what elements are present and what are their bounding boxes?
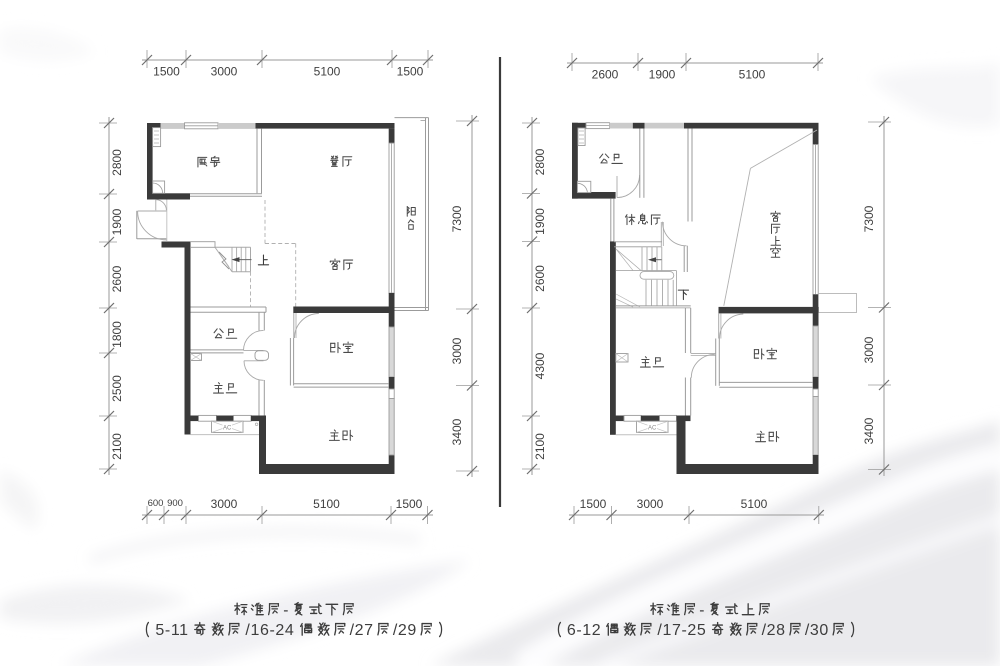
- svg-text:5100: 5100: [739, 68, 766, 82]
- svg-text:/28: /28: [762, 622, 786, 639]
- svg-text:3000: 3000: [211, 497, 238, 511]
- svg-text:3000: 3000: [211, 65, 238, 79]
- svg-text:3400: 3400: [862, 417, 876, 444]
- svg-text:1900: 1900: [649, 68, 676, 82]
- svg-text:/17-25: /17-25: [657, 622, 706, 639]
- svg-text:3000: 3000: [450, 337, 464, 364]
- svg-text:6-12: 6-12: [567, 622, 601, 639]
- svg-text:2500: 2500: [110, 375, 124, 402]
- svg-text:5100: 5100: [313, 497, 340, 511]
- svg-text:1500: 1500: [153, 65, 180, 79]
- svg-text:2800: 2800: [110, 149, 124, 176]
- svg-text:1900: 1900: [533, 208, 547, 235]
- svg-text:4300: 4300: [533, 352, 547, 379]
- svg-text:3000: 3000: [637, 497, 664, 511]
- svg-text:900: 900: [167, 498, 183, 509]
- svg-text:600: 600: [148, 498, 164, 509]
- svg-text:2100: 2100: [533, 433, 547, 460]
- svg-text:5-11: 5-11: [155, 622, 188, 639]
- svg-text:AC: AC: [648, 425, 657, 431]
- svg-text:1500: 1500: [580, 497, 607, 511]
- svg-text:/30: /30: [805, 622, 829, 639]
- svg-text:-: -: [699, 602, 705, 619]
- svg-text:1500: 1500: [397, 65, 424, 79]
- svg-text:5100: 5100: [314, 65, 341, 79]
- svg-text:2600: 2600: [592, 68, 619, 82]
- svg-text:7300: 7300: [862, 205, 876, 232]
- svg-text:5100: 5100: [741, 497, 768, 511]
- svg-text:/27: /27: [350, 622, 374, 639]
- svg-text:3000: 3000: [862, 336, 876, 363]
- svg-text:1500: 1500: [396, 497, 423, 511]
- svg-text:7300: 7300: [450, 205, 464, 232]
- svg-text:/16-24: /16-24: [245, 622, 294, 639]
- svg-text:1800: 1800: [110, 321, 124, 348]
- svg-text:3400: 3400: [450, 418, 464, 445]
- svg-text:2100: 2100: [110, 433, 124, 460]
- svg-text:2600: 2600: [110, 265, 124, 292]
- svg-text:2600: 2600: [533, 265, 547, 292]
- svg-text:-: -: [283, 602, 289, 619]
- svg-text:AC: AC: [223, 425, 232, 431]
- svg-text:2800: 2800: [533, 148, 547, 175]
- svg-text:/29: /29: [393, 622, 417, 639]
- svg-text:1900: 1900: [110, 208, 124, 235]
